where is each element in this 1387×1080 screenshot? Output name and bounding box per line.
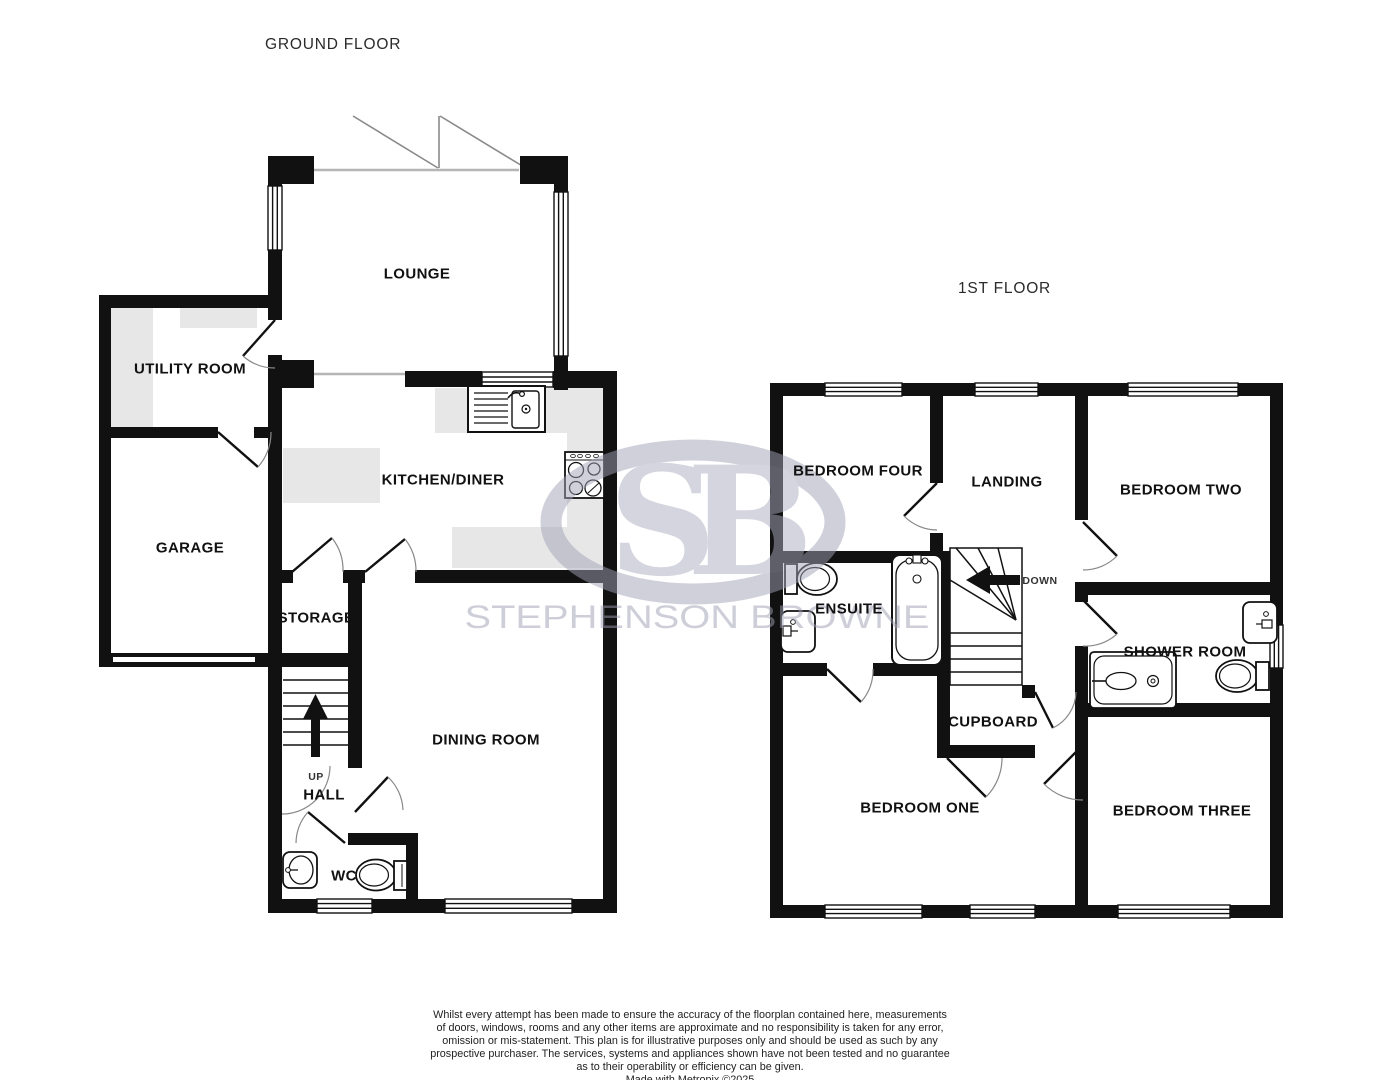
window-bedroom-four-icon xyxy=(825,383,902,396)
room-label-bedroom-one: BEDROOM ONE xyxy=(860,800,979,817)
room-label-bedroom-three: BEDROOM THREE xyxy=(1113,803,1252,820)
window-lounge-left-icon xyxy=(268,186,282,250)
room-label-lounge: LOUNGE xyxy=(384,266,451,283)
garage-door-icon xyxy=(113,657,255,662)
metropix-credit: Made with Metropix ©2025 xyxy=(340,1074,1040,1080)
room-label-bedroom-four: BEDROOM FOUR xyxy=(793,463,923,480)
french-doors-icon xyxy=(353,116,524,168)
window-landing-icon xyxy=(975,383,1038,396)
disclaimer-line: omission or mis-statement. This plan is … xyxy=(340,1035,1040,1048)
kitchen-sink-icon xyxy=(468,386,545,432)
stairs-up-icon xyxy=(283,680,348,757)
stairs-down-icon xyxy=(950,548,1022,685)
window-bedroom-two-icon xyxy=(1128,383,1238,396)
disclaimer-line: Whilst every attempt has been made to en… xyxy=(340,1009,1040,1022)
ground-floor-title: GROUND FLOOR xyxy=(265,36,401,54)
disclaimer-line: of doors, windows, rooms and any other i… xyxy=(340,1022,1040,1035)
room-label-utility: UTILITY ROOM xyxy=(134,361,246,378)
room-label-landing: LANDING xyxy=(971,474,1042,491)
floorplan: SB STEPHENSON BROWNE GROUND FLOOR 1ST FL… xyxy=(0,0,1387,1080)
room-label-kitchen: KITCHEN/DINER xyxy=(382,472,505,489)
room-label-storage: STORAGE xyxy=(278,610,355,627)
wc-sink-icon xyxy=(283,852,317,888)
room-label-dining: DINING ROOM xyxy=(432,732,540,749)
room-label-bedroom-two: BEDROOM TWO xyxy=(1120,482,1242,499)
stairs-up-label: UP xyxy=(308,771,324,783)
first-floor-title: 1ST FLOOR xyxy=(958,280,1051,298)
doors-ground xyxy=(218,320,416,843)
ground-floor-plan xyxy=(99,116,617,913)
brand-monogram: SB xyxy=(608,434,805,610)
shower-room-sink-icon xyxy=(1243,602,1277,643)
room-label-ensuite: ENSUITE xyxy=(815,601,883,618)
room-label-hall: HALL xyxy=(303,787,345,804)
window-bedroom-one-left-icon xyxy=(825,905,922,918)
room-label-garage: GARAGE xyxy=(156,540,224,557)
room-label-shower-room: SHOWER ROOM xyxy=(1124,644,1247,661)
disclaimer-line: prospective purchaser. The services, sys… xyxy=(340,1048,1040,1061)
wc-toilet-icon xyxy=(356,860,407,891)
window-bedroom-one-right-icon xyxy=(970,905,1035,918)
window-kitchen-icon xyxy=(482,372,553,387)
room-label-wc: WC xyxy=(331,868,357,885)
window-lounge-right-icon xyxy=(554,192,568,356)
window-bedroom-three-icon xyxy=(1118,905,1230,918)
shower-room-toilet-icon xyxy=(1216,660,1269,692)
window-dining-icon xyxy=(445,899,572,913)
stairs-down-label: DOWN xyxy=(1022,575,1057,587)
window-wc-icon xyxy=(317,899,372,913)
room-label-cupboard: CUPBOARD xyxy=(948,714,1038,731)
disclaimer-line: as to their operability or efficiency ca… xyxy=(340,1061,1040,1074)
